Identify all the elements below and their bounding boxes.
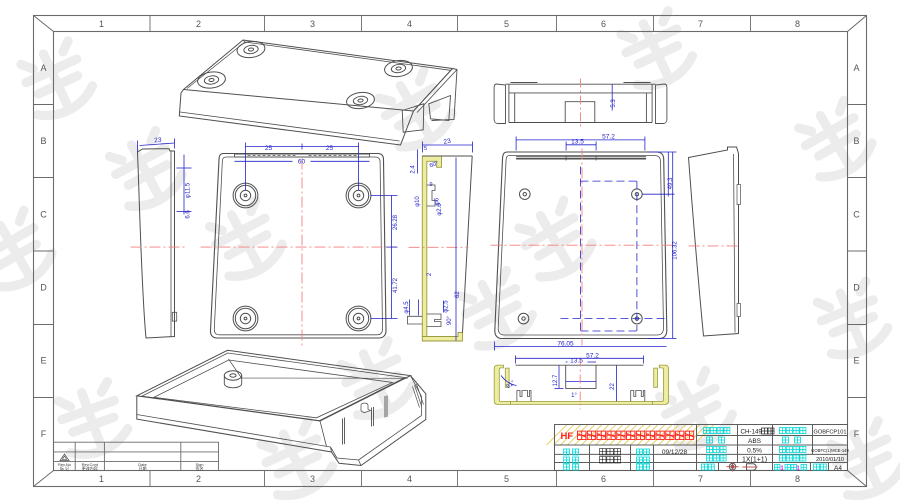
svg-text:5: 5 [504,19,509,29]
svg-text:A: A [40,63,46,73]
svg-text:B: B [853,136,859,146]
svg-text:4: 4 [407,19,412,29]
svg-text:标 记: 标 记 [60,465,69,471]
svg-text:更改内容: 更改内容 [82,465,98,471]
svg-text:5: 5 [424,146,427,152]
svg-text:57.2: 57.2 [586,352,599,359]
svg-text:签名: 签名 [196,465,204,471]
svg-text:25: 25 [265,145,273,152]
svg-text:7: 7 [698,474,703,484]
svg-text:9: 9 [429,182,432,188]
svg-text:日期: 日期 [139,465,147,471]
svg-text:1: 1 [99,474,104,484]
svg-text:5.3: 5.3 [611,99,617,108]
svg-text:F: F [854,429,860,439]
svg-text:2: 2 [196,19,201,29]
svg-text:0.5%: 0.5% [747,448,762,455]
svg-text:6: 6 [601,19,606,29]
svg-text:A4: A4 [834,465,842,472]
svg-text:4: 4 [407,474,412,484]
svg-text:F: F [41,429,47,439]
svg-text:φ11.5: φ11.5 [186,182,192,198]
svg-text:7: 7 [698,19,703,29]
svg-text:90°: 90° [447,315,453,325]
svg-text:41.72: 41.72 [393,277,399,293]
svg-text:C: C [40,209,47,219]
svg-text:C: C [853,209,860,219]
svg-text:09/12/28: 09/12/28 [662,449,688,456]
svg-text:D: D [853,283,860,293]
svg-text:D: D [40,283,47,293]
svg-text:GOBFC(1)MCE-149: GOBFC(1)MCE-149 [811,448,849,453]
svg-text:CH-149: CH-149 [741,429,763,436]
svg-text:23: 23 [154,137,162,145]
svg-text:2010/01/10: 2010/01/10 [816,457,844,463]
svg-text:2.4: 2.4 [411,165,417,174]
svg-text:E: E [40,356,46,366]
svg-text:HF: HF [561,431,574,442]
svg-text:ABS: ABS [748,438,762,445]
svg-text:57.2: 57.2 [602,134,615,141]
svg-text:3: 3 [310,474,315,484]
svg-text:6: 6 [601,474,606,484]
svg-text:GOBFCP101: GOBFCP101 [814,430,847,436]
svg-text:φ2.6: φ2.6 [437,203,443,216]
svg-text:76.05: 76.05 [557,341,574,348]
svg-text:E: E [853,356,859,366]
svg-text:13.5: 13.5 [571,139,584,146]
svg-text:26.28: 26.28 [393,214,399,230]
svg-text:2: 2 [196,474,201,484]
svg-text:5: 5 [504,474,509,484]
svg-text:1°: 1° [571,393,577,399]
svg-text:8: 8 [795,19,800,29]
svg-text:B: B [40,136,46,146]
svg-text:12.7: 12.7 [553,374,559,386]
svg-text:A: A [853,63,859,73]
svg-text:φ10: φ10 [415,196,421,207]
svg-text:6.6: 6.6 [186,210,192,219]
svg-text:22: 22 [610,383,616,390]
svg-text:φ4.5: φ4.5 [404,301,410,314]
svg-text:106.32: 106.32 [673,241,679,260]
svg-text:60: 60 [298,159,306,166]
svg-text:13.5: 13.5 [570,358,583,365]
svg-text:1: 1 [99,19,104,29]
svg-text:φ2.5: φ2.5 [444,300,450,313]
svg-text:3: 3 [310,19,315,29]
svg-text:25: 25 [326,145,334,152]
svg-text:8: 8 [795,474,800,484]
svg-text:1X(1+1): 1X(1+1) [742,457,767,464]
svg-text:62: 62 [455,291,461,298]
